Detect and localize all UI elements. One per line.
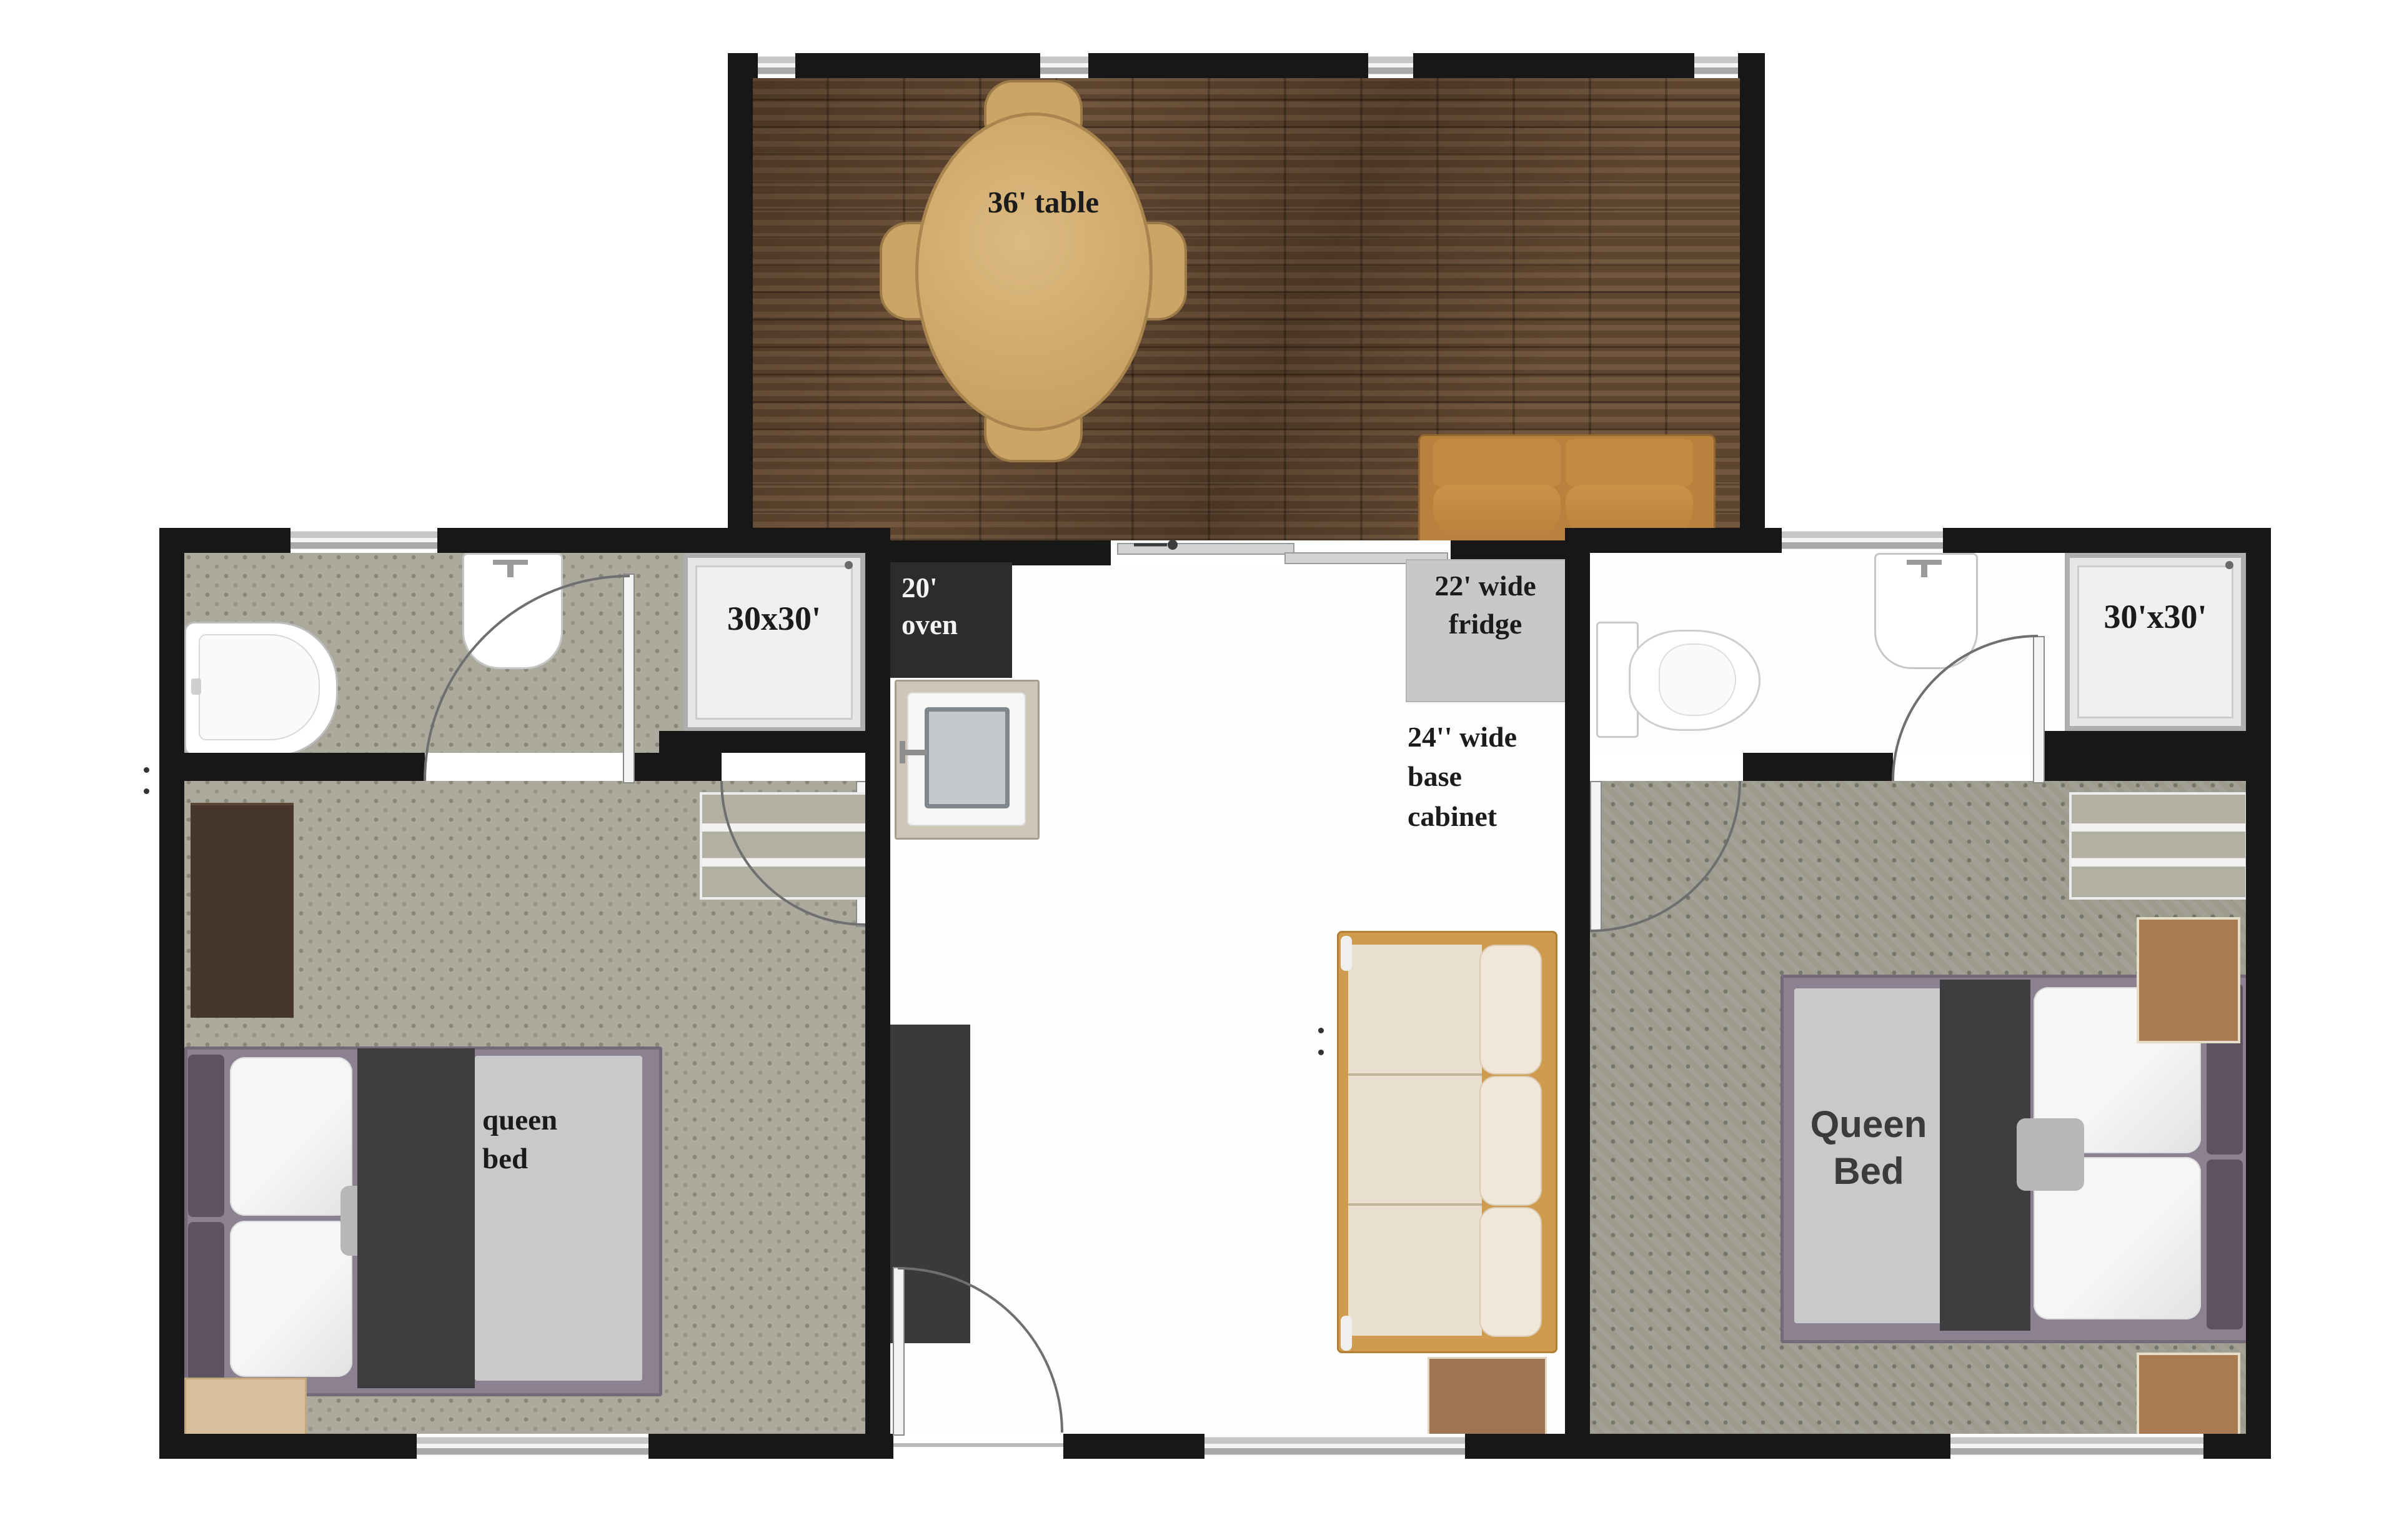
sofa-back-cushion [1479,945,1542,1075]
fridge-label: 22' wide fridge [1406,567,1565,643]
shower-right-label: 30'x30' [2065,595,2246,639]
loveseat-seat-cushion [1433,485,1561,539]
shower-left-label: 30x30' [683,597,865,641]
loveseat-back-cushion [1433,439,1561,487]
window [1204,1434,1465,1459]
stray-mark [1318,1050,1324,1055]
entry-door-threshold [893,1443,1063,1447]
window [1694,53,1738,78]
bed-right-label: Queen Bed [1788,1101,1949,1195]
kitchen-sink-basin [925,707,1010,808]
dining-table-label: 36' table [937,182,1150,223]
bedroom-door-opening [1590,753,1743,781]
faucet-icon [900,741,905,763]
right-unit-wall-right [2246,528,2271,1459]
window [1782,528,1943,553]
headboard-cushion [2207,1160,2243,1329]
divider-wall [1743,753,1893,781]
shower-head-icon [845,561,853,569]
divider-wall [2043,753,2246,781]
pillow [230,1057,352,1216]
top-room-wall-left [728,53,753,565]
headboard-cushion [188,1055,224,1217]
window [1368,53,1413,78]
sliding-door-panel [1117,543,1294,555]
window [417,1434,648,1459]
loveseat-back-cushion [1566,439,1693,487]
sofa-back-cushion [1479,1207,1542,1337]
window [291,528,437,553]
kitchen-right-shared-wall [1565,528,1590,1459]
rug [2137,917,2240,1043]
bathtub-basin [199,634,320,740]
window [1040,53,1088,78]
window [758,53,795,78]
bathroom-door-opening [425,753,631,781]
toilet-seat-line [1659,643,1736,716]
top-room-wall-top [728,53,1765,78]
faucet-icon [507,560,514,577]
window [1950,1434,2203,1459]
top-room-wall-right [1740,53,1765,565]
faucet-icon [1921,560,1927,577]
bedroom-door-opening [722,753,865,781]
accent-pillow [2017,1118,2084,1191]
floor-plan: 36' table 30x30' [0,0,2399,1540]
divider-wall [184,753,425,781]
left-unit-wall-left [159,528,184,1459]
headboard-cushion [188,1222,224,1384]
stray-mark [144,767,149,773]
pillow [230,1221,352,1377]
nightstand [184,1378,307,1438]
shower-right-pan [2077,565,2233,718]
shower-partition-wall [2040,731,2246,753]
bathroom-door-leaf [623,574,635,783]
base-cabinet-label: 24'' wide base cabinet [1408,717,1576,836]
side-table [1428,1357,1547,1436]
stray-mark [1318,1028,1324,1033]
sofa-seam [1348,1203,1482,1206]
left-unit-wall-top [159,528,890,553]
sofa-seats [1348,945,1482,1336]
divider-wall [631,753,722,781]
sofa-arm-pad [1341,1316,1352,1351]
dining-table [915,112,1153,431]
bath-dresser-right [2069,792,2248,900]
stray-mark [144,788,149,794]
dresser-dark [191,803,294,1018]
shower-left-pan [695,565,853,720]
shower-head-icon [2225,561,2233,569]
sofa-arm-pad [1341,936,1352,971]
entry-door-leaf [893,1267,905,1436]
bath-dresser-left [700,792,868,900]
bathroom-door-leaf [2033,636,2045,783]
bed-left-label: queen bed [482,1101,645,1178]
blanket-band [357,1048,475,1388]
shower-partition-wall [659,731,865,753]
sofa-seam [1348,1073,1482,1076]
oven-label: 20' oven [901,570,1008,644]
bathtub-faucet-icon [191,678,201,695]
left-kitchen-shared-wall [865,528,890,1459]
rug [2137,1353,2240,1437]
bedroom-door-leaf [1590,781,1602,931]
sofa-back-cushion [1479,1076,1542,1206]
bathroom-door-opening [1893,753,2043,781]
